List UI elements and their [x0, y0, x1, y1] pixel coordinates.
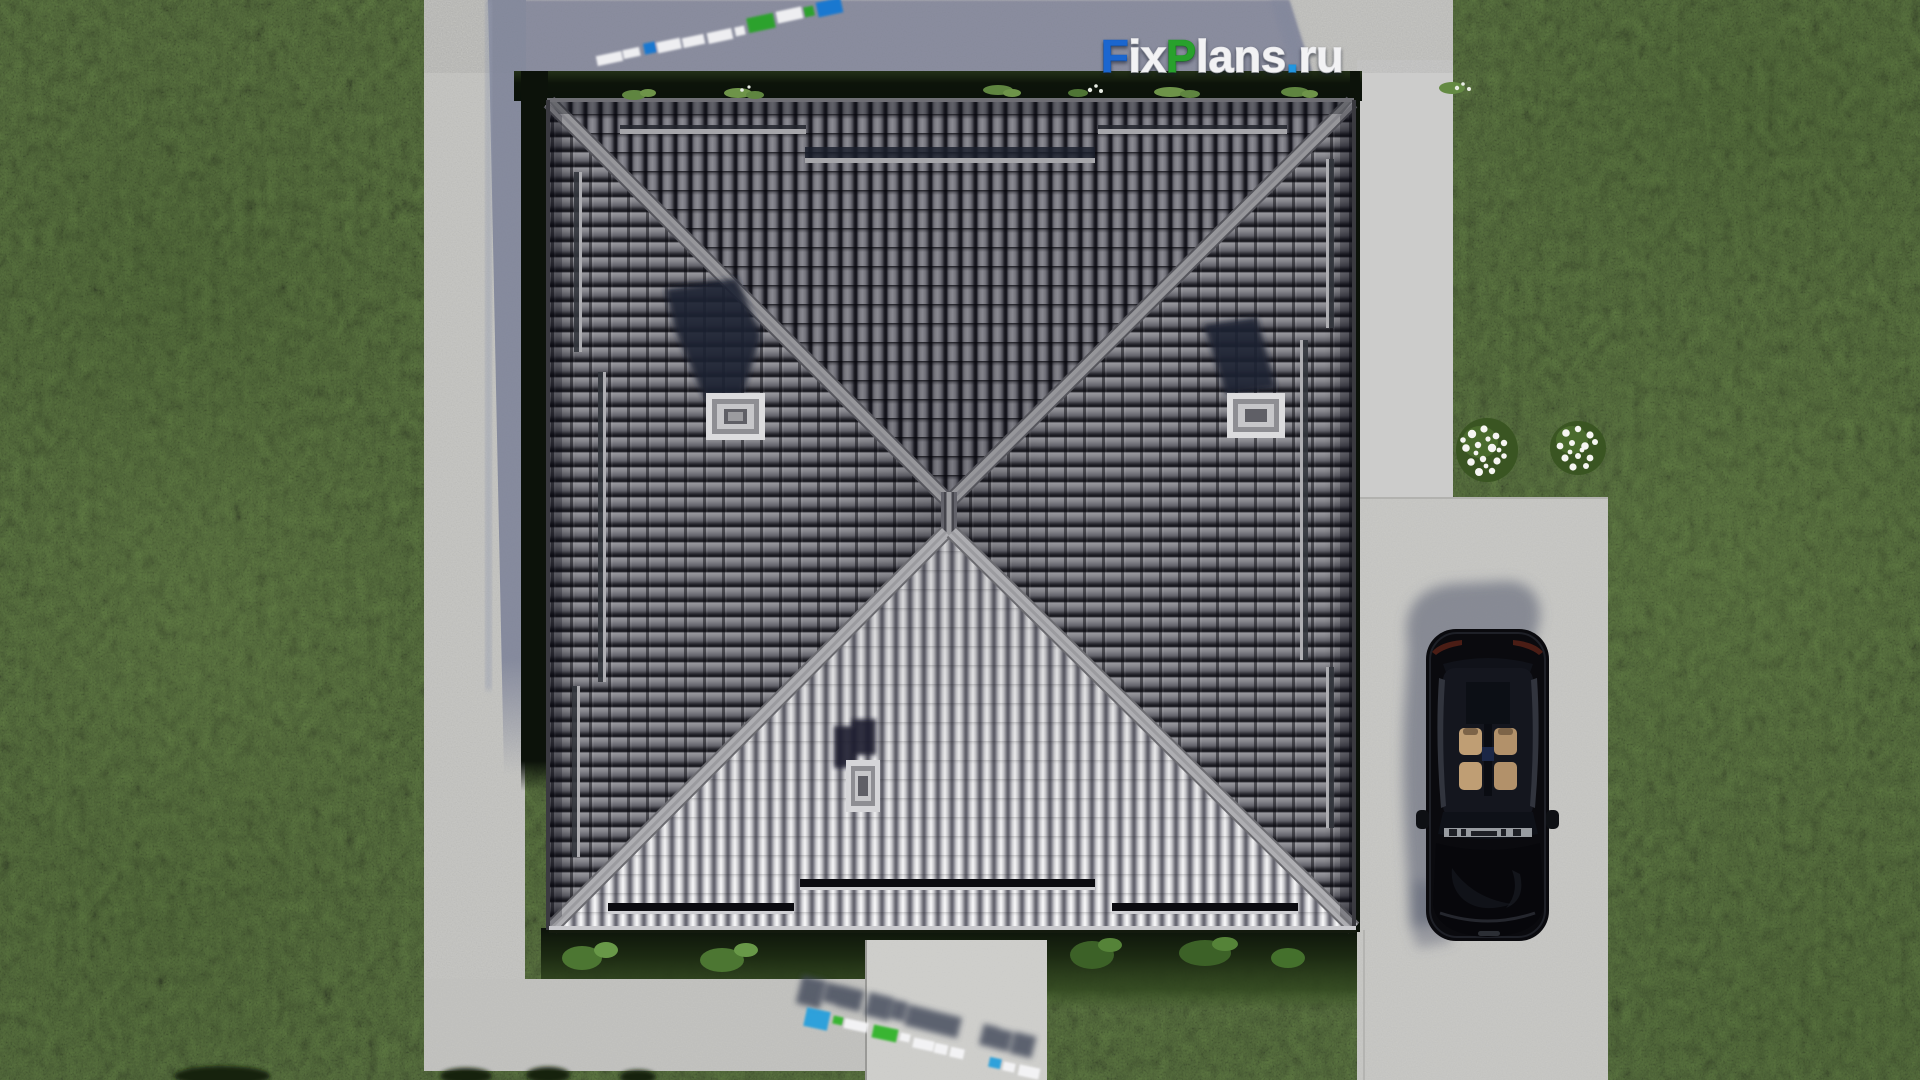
svg-text:FixPlans.ru: FixPlans.ru	[1101, 31, 1344, 82]
